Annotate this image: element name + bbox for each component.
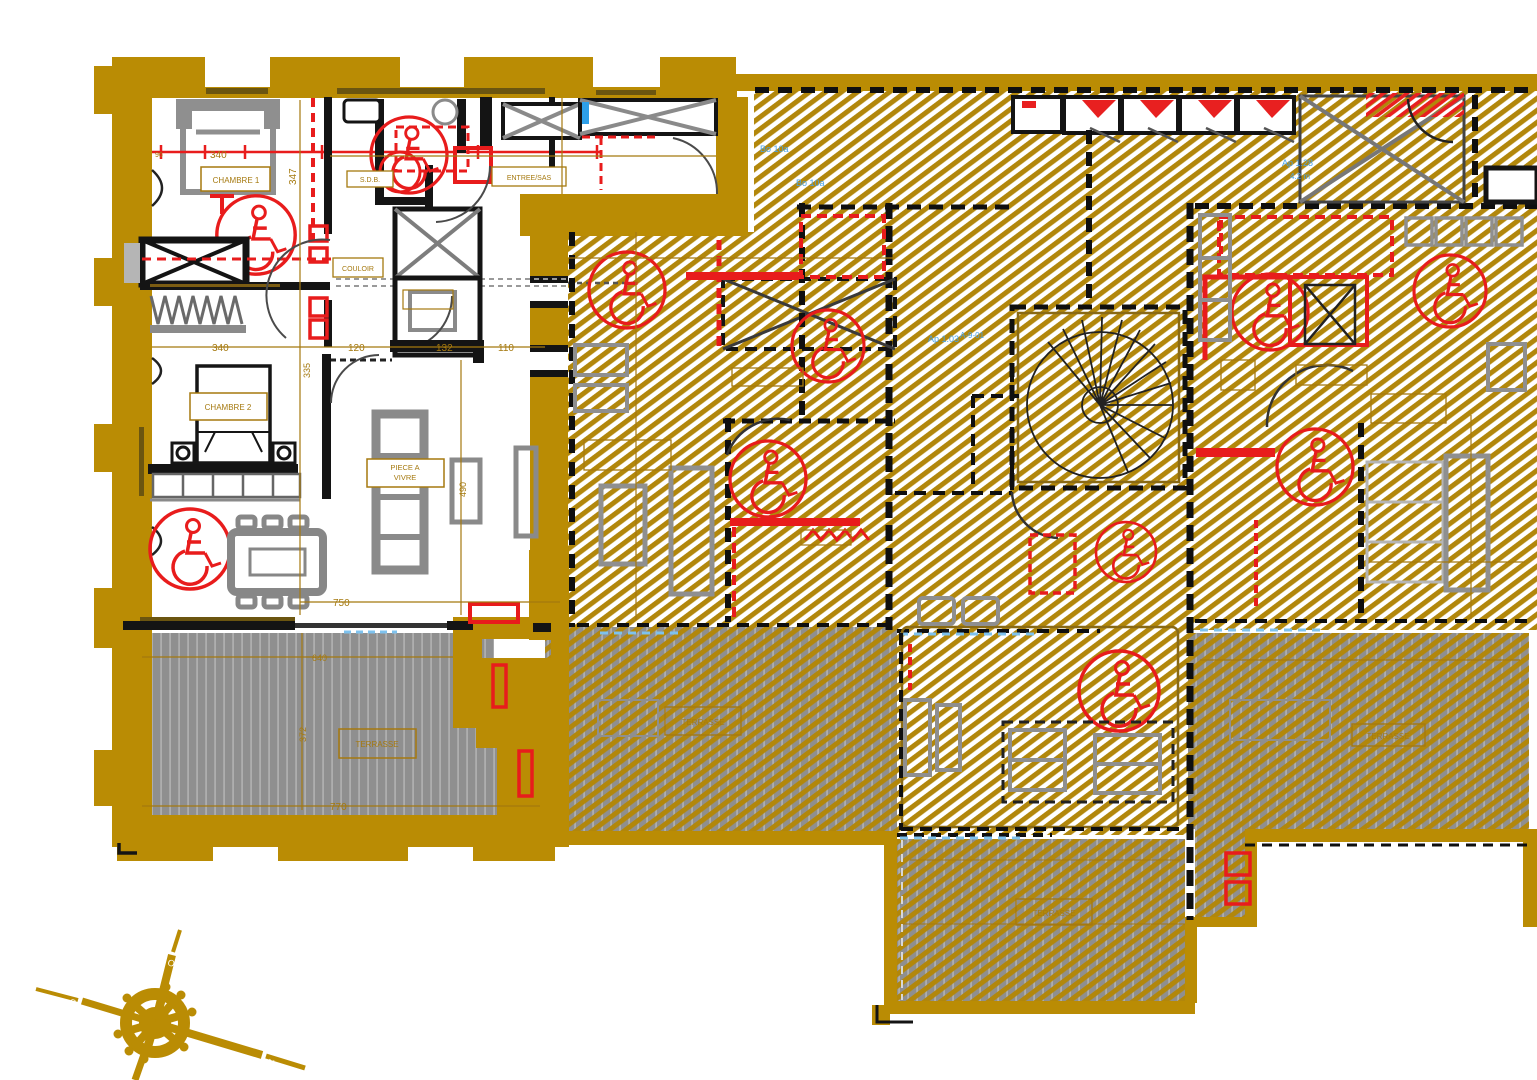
svg-text:CHAMBRE 1: CHAMBRE 1: [213, 176, 260, 185]
svg-text:PIECE A: PIECE A: [390, 463, 419, 472]
svg-text:Bo 10a: Bo 10a: [796, 178, 825, 188]
svg-text:Ap 1.03: Ap 1.03: [928, 334, 959, 344]
svg-text:S.D.B.: S.D.B.: [360, 177, 380, 184]
svg-text:770: 770: [330, 802, 347, 813]
svg-text:Ap 1.28: Ap 1.28: [1282, 158, 1313, 168]
svg-text:CHAMBRE 2: CHAMBRE 2: [205, 403, 252, 412]
svg-text:110: 110: [498, 343, 514, 354]
svg-text:372: 372: [298, 727, 308, 742]
svg-text:ENTREE/SAS: ENTREE/SAS: [507, 175, 552, 182]
svg-text:120: 120: [348, 343, 365, 354]
svg-text:640: 640: [312, 653, 327, 663]
svg-text:96: 96: [155, 152, 163, 159]
svg-text:490: 490: [458, 482, 468, 497]
svg-text:A-9-01: A-9-01: [960, 331, 985, 340]
svg-text:TERRASSE: TERRASSE: [355, 740, 398, 749]
svg-text:4.2 m: 4.2 m: [1290, 172, 1310, 181]
svg-text:TERRASSE: TERRASSE: [681, 718, 724, 727]
svg-text:Bo 10a: Bo 10a: [760, 144, 789, 154]
svg-text:750: 750: [333, 598, 350, 609]
svg-text:COULOIR: COULOIR: [342, 266, 374, 273]
svg-text:340: 340: [210, 150, 227, 161]
svg-text:VIVRE: VIVRE: [394, 473, 417, 482]
svg-text:TERRASSE: TERRASSE: [1366, 732, 1409, 741]
svg-text:TERRASSE: TERRASSE: [1032, 909, 1075, 918]
svg-text:132: 132: [436, 343, 453, 354]
svg-text:335: 335: [302, 363, 312, 378]
svg-text:340: 340: [212, 343, 229, 354]
svg-text:347: 347: [288, 168, 299, 185]
